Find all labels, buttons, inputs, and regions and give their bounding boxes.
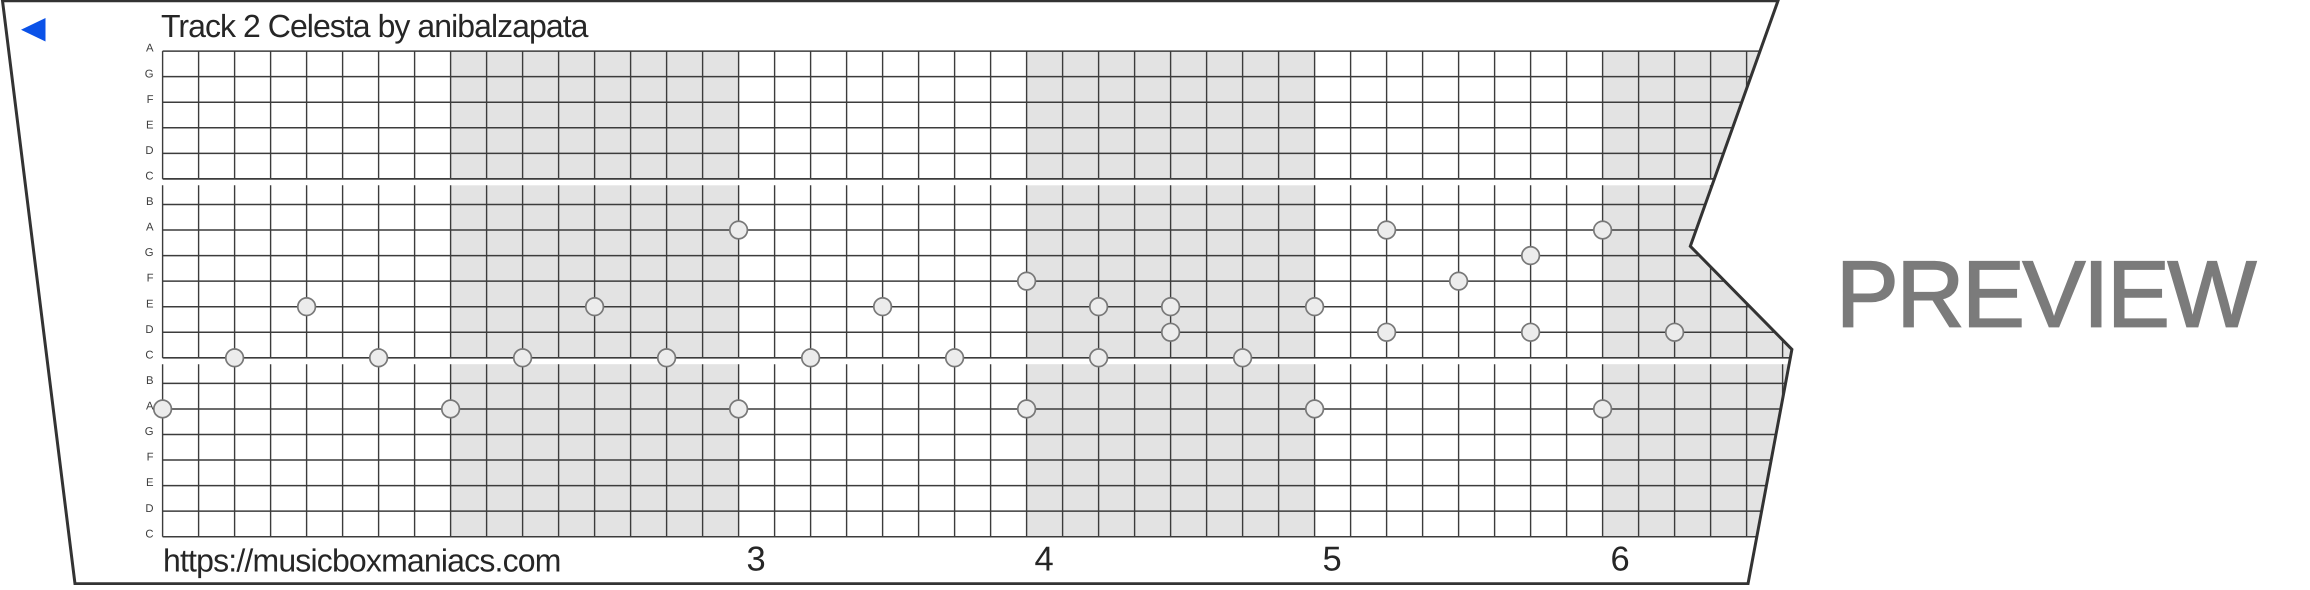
svg-text:B: B: [146, 375, 154, 387]
svg-text:G: G: [145, 426, 154, 438]
svg-text:5: 5: [1323, 541, 1342, 579]
svg-text:Track 2 Celesta by anibalzapat: Track 2 Celesta by anibalzapata: [161, 8, 589, 44]
svg-text:4: 4: [1035, 541, 1054, 579]
svg-text:A: A: [146, 43, 154, 55]
svg-text:E: E: [146, 477, 154, 489]
svg-text:E: E: [146, 298, 154, 310]
svg-text:F: F: [147, 273, 154, 285]
svg-text:B: B: [146, 196, 154, 208]
svg-text:D: D: [145, 503, 153, 515]
svg-text:F: F: [147, 452, 154, 464]
svg-text:PREVIEW: PREVIEW: [1836, 242, 2257, 347]
svg-text:F: F: [147, 94, 154, 106]
svg-text:C: C: [145, 528, 153, 540]
svg-text:G: G: [145, 68, 154, 80]
svg-text:G: G: [145, 247, 154, 259]
svg-text:D: D: [145, 324, 153, 336]
svg-text:A: A: [146, 222, 154, 234]
svg-text:E: E: [146, 119, 154, 131]
svg-text:6: 6: [1611, 541, 1630, 579]
svg-text:D: D: [145, 145, 153, 157]
svg-text:C: C: [145, 349, 153, 361]
svg-text:A: A: [146, 401, 154, 413]
svg-text:https://musicboxmaniacs.com: https://musicboxmaniacs.com: [163, 543, 561, 579]
svg-text:C: C: [145, 171, 153, 183]
svg-text:3: 3: [747, 541, 766, 579]
